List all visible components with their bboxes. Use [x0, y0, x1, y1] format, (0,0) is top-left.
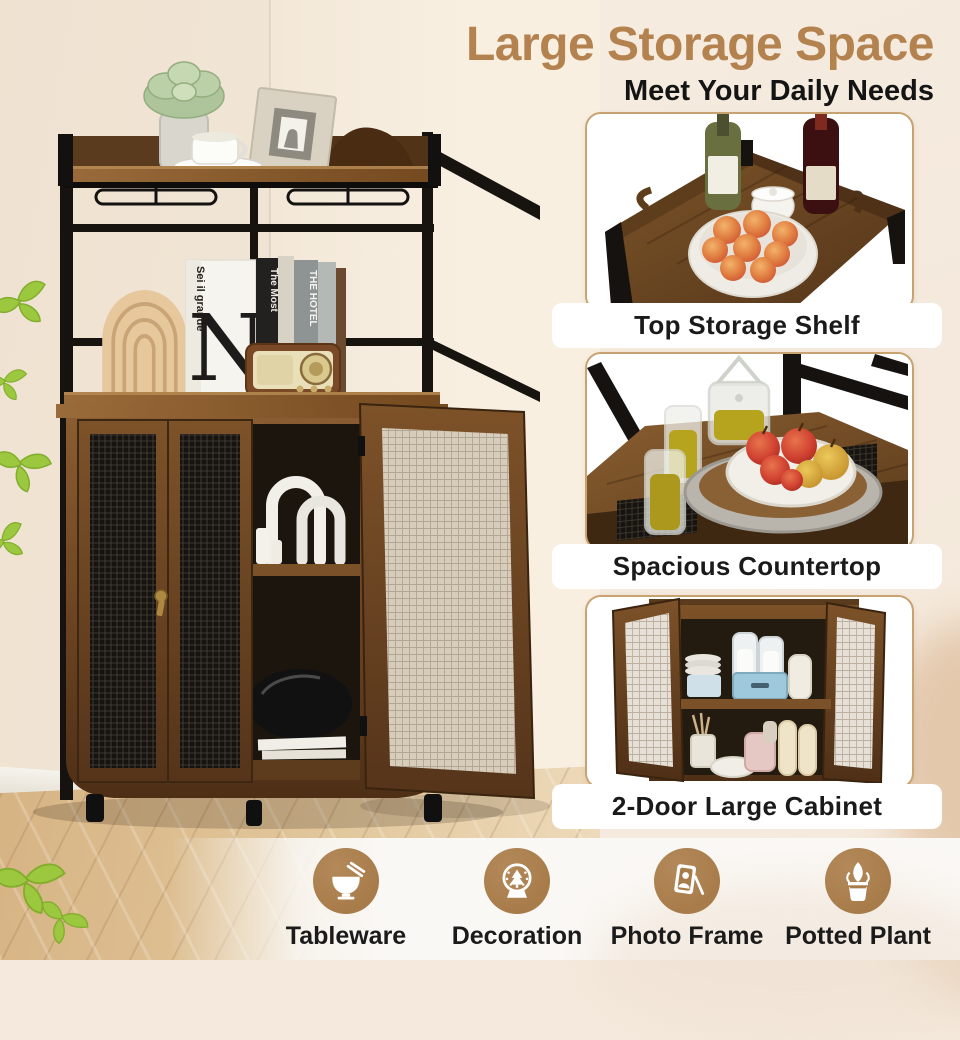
caption-strip: 2-Door Large Cabinet [552, 784, 942, 829]
inset-caption: 2-Door Large Cabinet [612, 791, 882, 822]
feature-label: Potted Plant [768, 922, 948, 951]
dark-wood-decor [322, 128, 414, 169]
candle [272, 540, 282, 564]
candle [256, 528, 269, 564]
bowl-chopsticks-icon [325, 860, 367, 902]
vintage-radio [246, 344, 340, 396]
page-subtitle: Meet Your Daily Needs [334, 74, 934, 108]
svg-text:THE HOTEL: THE HOTEL [307, 270, 318, 327]
inset-card-open-cabinet [585, 595, 914, 789]
feature-label: Photo Frame [597, 922, 777, 951]
cabinet-interior [248, 424, 360, 780]
feature-decoration: Decoration [427, 848, 607, 951]
countertop-photo [587, 354, 908, 545]
bowl-of-peaches [689, 210, 817, 297]
svg-text:The Most: The Most [268, 268, 279, 313]
feature-potted-plant: Potted Plant [768, 848, 948, 951]
potted-plant-icon [837, 860, 879, 902]
green-wine-bottle [705, 114, 741, 210]
inset-caption: Top Storage Shelf [634, 310, 860, 341]
open-door-right [823, 603, 885, 783]
interior-shelf [250, 564, 360, 576]
cabinet-left-door [78, 420, 168, 782]
feature-badge [313, 848, 379, 914]
feature-badge [825, 848, 891, 914]
feature-label: Tableware [256, 922, 436, 951]
page-title: Large Storage Space [334, 18, 934, 72]
cabinet-open-door [358, 404, 534, 798]
cabinet-middle-door [168, 420, 252, 782]
photo-frame-icon [666, 860, 708, 902]
feature-badge [654, 848, 720, 914]
caption-strip: Spacious Countertop [552, 544, 942, 589]
black-bowl [248, 669, 352, 739]
cabinet-shelf [681, 699, 831, 709]
feature-label: Decoration [427, 922, 607, 951]
photo-frame-decor [249, 88, 336, 177]
snow-globe-icon [496, 860, 538, 902]
feature-badge [484, 848, 550, 914]
caption-strip: Top Storage Shelf [552, 303, 942, 348]
inset-caption: Spacious Countertop [613, 551, 882, 582]
inset-card-countertop [585, 352, 914, 551]
arch-bookend-decor [102, 290, 187, 396]
red-wine-bottle [803, 114, 839, 214]
feature-tableware: Tableware [256, 848, 436, 951]
title-block: Large Storage Space Meet Your Daily Need… [334, 18, 934, 108]
open-cabinet-photo [587, 597, 908, 783]
inset-card-top-shelf [585, 112, 914, 312]
top-shelf-photo [587, 114, 908, 306]
feature-photo-frame: Photo Frame [597, 848, 777, 951]
open-door-left [613, 599, 683, 781]
